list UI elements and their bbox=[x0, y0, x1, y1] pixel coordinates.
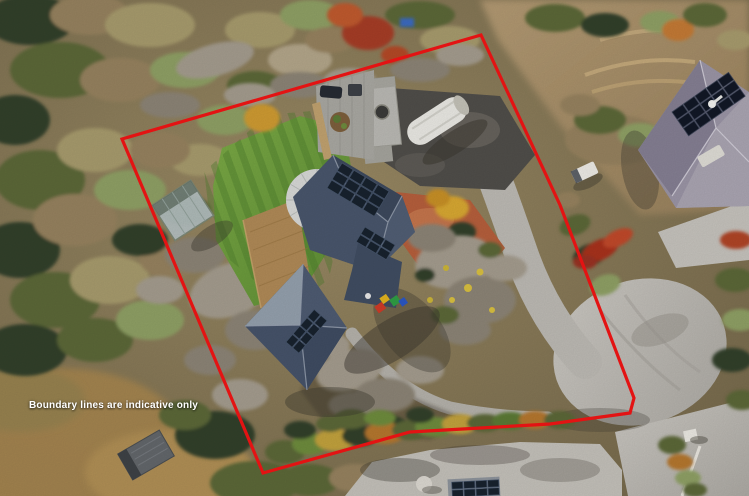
disclaimer-text: Boundary lines are indicative only bbox=[29, 400, 198, 411]
photo-grain bbox=[0, 0, 749, 496]
aerial-photo: Boundary lines are indicative only bbox=[0, 0, 749, 496]
aerial-photo-canvas bbox=[0, 0, 749, 496]
